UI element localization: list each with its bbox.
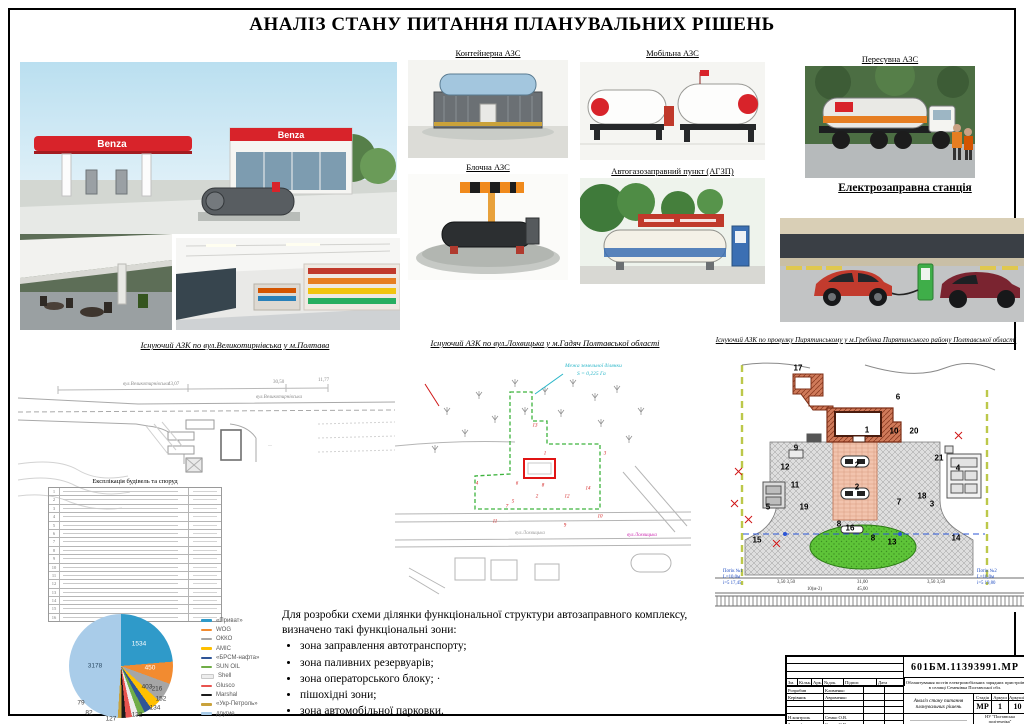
note-bullet: зона заправлення автотранспорту; bbox=[300, 639, 712, 654]
organization: НУ "Полтавська політехніка" ім. Юрія Кон… bbox=[973, 713, 1024, 724]
plan-number-label: 13 bbox=[888, 538, 897, 547]
plan-number-label: 20 bbox=[910, 427, 919, 436]
legend-swatch bbox=[201, 703, 212, 705]
agzp-photo bbox=[580, 178, 765, 284]
title-block-cell bbox=[863, 720, 885, 724]
legend-swatch bbox=[201, 647, 212, 649]
explication-cell bbox=[189, 488, 221, 495]
plan-number-label: 13 bbox=[533, 424, 538, 429]
plan-number-label: 2 bbox=[536, 495, 539, 500]
explication-cell: 12 bbox=[49, 580, 60, 587]
explication-cell bbox=[60, 597, 189, 604]
legend-item: Glusco bbox=[201, 681, 259, 690]
explication-cell bbox=[189, 555, 221, 562]
plan-right-numbers: 17611020912115192221418378168131514 bbox=[715, 350, 1024, 612]
plan-number-label: 2 bbox=[855, 483, 859, 492]
legend-label: «Укр-Петроль» bbox=[216, 701, 258, 707]
plan-number-label: 8 bbox=[871, 534, 875, 543]
explication-cell bbox=[189, 496, 221, 503]
legend-swatch bbox=[201, 619, 212, 621]
pie-value-label: 1534 bbox=[132, 641, 146, 648]
explication-cell: 7 bbox=[49, 538, 60, 545]
explication-row: 10 bbox=[49, 564, 221, 572]
explication-cell bbox=[189, 522, 221, 529]
plan-number-label: 10 bbox=[598, 515, 603, 520]
sheet-frame: АНАЛІЗ СТАНУ ПИТАННЯ ПЛАНУВАЛЬНИХ РІШЕНЬ… bbox=[8, 8, 1016, 716]
ev-charging-photo bbox=[780, 218, 1024, 322]
legend-item: ОККО bbox=[201, 635, 259, 644]
explication-cell bbox=[60, 530, 189, 537]
legend-label: Marshal bbox=[216, 692, 237, 698]
note-bullet: зона операторського блоку; · bbox=[300, 672, 712, 687]
svg-text:30,50: 30,50 bbox=[273, 380, 285, 385]
plan-number-label: 19 bbox=[800, 503, 809, 512]
explication-title: Експлікація будівель та споруд bbox=[48, 478, 222, 485]
title-block-cell: Кільк. bbox=[797, 678, 812, 686]
towable-azs-photo bbox=[805, 66, 975, 178]
legend-label: ОККО bbox=[216, 636, 232, 642]
pie-value-label: 82 bbox=[85, 710, 92, 717]
explication-row: 9 bbox=[49, 555, 221, 563]
explication-cell bbox=[60, 522, 189, 529]
explication-cell bbox=[60, 513, 189, 520]
plan-number-label: 21 bbox=[935, 454, 944, 463]
note-bullet: зона автомобільної парковки. bbox=[300, 704, 712, 719]
doc-number: 601БМ.11393991.МР bbox=[903, 656, 1024, 678]
benza-render-image: Benza Benza bbox=[20, 62, 397, 234]
explication-table: Експлікація будівель та споруд 123456789… bbox=[48, 478, 222, 622]
legend-item: AMIC bbox=[201, 644, 259, 653]
plan-number-label: 14 bbox=[952, 534, 961, 543]
explication-cell bbox=[189, 597, 221, 604]
pie-value-label: 3178 bbox=[88, 663, 102, 670]
explication-cell: 4 bbox=[49, 513, 60, 520]
legend-item: WOG bbox=[201, 625, 259, 634]
azs-exterior-photo bbox=[20, 234, 172, 330]
plan-number-label: 7 bbox=[897, 498, 901, 507]
explication-cell: 13 bbox=[49, 589, 60, 596]
benza-building: Benza bbox=[230, 128, 352, 194]
explication-cell bbox=[189, 589, 221, 596]
towable-azs-caption: Пересувна АЗС bbox=[805, 54, 975, 64]
plan-number-label: 17 bbox=[794, 364, 803, 373]
plan-number-label: 3 bbox=[604, 452, 607, 457]
explication-cell bbox=[60, 564, 189, 571]
explication-cell: 5 bbox=[49, 522, 60, 529]
legend-item: «Укр-Петроль» bbox=[201, 700, 259, 709]
legend-swatch bbox=[201, 694, 212, 696]
block-azs-photo bbox=[408, 174, 568, 280]
plan-number-label: 16 bbox=[846, 524, 855, 533]
plan-left-caption: Існуючий АЗК по вул.Великотирнівська у м… bbox=[70, 340, 400, 350]
container-azs-photo bbox=[408, 60, 568, 158]
title-block: Зм.Кільк.Арк.№док.ПідписДатаРозробивКлим… bbox=[785, 655, 1024, 724]
explication-row: 2 bbox=[49, 496, 221, 504]
plan-number-label: 6 bbox=[896, 393, 900, 402]
legend-label: другие bbox=[216, 711, 235, 717]
drawing-sheet: АНАЛІЗ СТАНУ ПИТАННЯ ПЛАНУВАЛЬНИХ РІШЕНЬ… bbox=[0, 0, 1024, 724]
explication-cell bbox=[60, 572, 189, 579]
explication-cell bbox=[60, 496, 189, 503]
legend-swatch bbox=[201, 657, 212, 659]
title-block-cell: Зав.кафедри bbox=[786, 720, 824, 724]
plan-middle-numbers: 1313468212145711109 bbox=[395, 354, 691, 606]
fuel-truck bbox=[819, 98, 955, 149]
explication-cell bbox=[189, 564, 221, 571]
legend-swatch bbox=[201, 666, 212, 668]
notes-intro-2: визначено такі функціональні зони: bbox=[282, 623, 712, 638]
plan-middle-caption: Існуючий АЗК по вул.Лохвицька у м.Гадяч … bbox=[400, 338, 690, 348]
legend-swatch bbox=[201, 685, 212, 687]
explication-row: 12 bbox=[49, 580, 221, 588]
explication-row: 13 bbox=[49, 589, 221, 597]
plan-number-label: 14 bbox=[586, 487, 591, 492]
explication-row: 11 bbox=[49, 572, 221, 580]
legend-item: «Приват» bbox=[201, 616, 259, 625]
plan-number-label: 11 bbox=[791, 481, 799, 490]
legend-item: Marshal bbox=[201, 690, 259, 699]
explication-row: 7 bbox=[49, 538, 221, 546]
explication-cell bbox=[60, 505, 189, 512]
plan-number-label: 6 bbox=[516, 482, 519, 487]
explication-cell: 6 bbox=[49, 530, 60, 537]
svg-text:вул.Великотирнівська: вул.Великотирнівська bbox=[123, 382, 169, 387]
explication-cell bbox=[189, 580, 221, 587]
ev-station-caption: Електрозаправна станція bbox=[785, 182, 1024, 194]
plan-number-label: 10 bbox=[890, 427, 899, 436]
plan-number-label: 4 bbox=[956, 464, 960, 473]
pie-value-label: 132 bbox=[132, 712, 143, 719]
store-interior-photo bbox=[176, 238, 400, 330]
explication-cell bbox=[60, 547, 189, 554]
legend-item: «БРСМ-нафта» bbox=[201, 653, 259, 662]
pie-value-label: 450 bbox=[145, 665, 156, 672]
legend-swatch bbox=[201, 674, 214, 678]
svg-text:Benza: Benza bbox=[278, 130, 306, 140]
svg-text:43,07: 43,07 bbox=[168, 382, 180, 387]
site-plan-hrebinka: 3,50 3,50 31,00 3,50 3,50 10(м-2) 45,00 … bbox=[715, 350, 1024, 612]
plan-number-label: 9 bbox=[794, 444, 798, 453]
explication-cell bbox=[189, 513, 221, 520]
explication-cell: 11 bbox=[49, 572, 60, 579]
explication-row: 8 bbox=[49, 547, 221, 555]
plan-number-label: 11 bbox=[493, 520, 498, 525]
svg-text:вул.Великотирнівська: вул.Великотирнівська bbox=[256, 395, 302, 400]
explication-row: 1 bbox=[49, 488, 221, 496]
title-block-cell bbox=[884, 720, 904, 724]
explication-cell bbox=[189, 547, 221, 554]
explication-cell bbox=[60, 580, 189, 587]
empty-note-cell bbox=[903, 713, 974, 724]
explication-cell bbox=[189, 505, 221, 512]
legend-label: «Приват» bbox=[216, 618, 243, 624]
plan-number-label: 18 bbox=[918, 492, 927, 501]
site-plan-hadiach: Межа земельної ділянки S = 0,225 Га вул.… bbox=[395, 354, 691, 606]
explication-cell bbox=[189, 572, 221, 579]
explication-cell: 9 bbox=[49, 555, 60, 562]
plan-number-label: 12 bbox=[565, 495, 570, 500]
explication-cell: 1 bbox=[49, 488, 60, 495]
plan-number-label: 3 bbox=[930, 500, 934, 509]
explication-cell bbox=[60, 488, 189, 495]
legend-label: AMIC bbox=[216, 646, 231, 652]
legend-item: другие bbox=[201, 709, 259, 718]
note-bullet: зона паливних резервуарів; bbox=[300, 656, 712, 671]
title-block-cell: Дата bbox=[876, 678, 905, 686]
title-block-cell: №док. bbox=[822, 678, 844, 686]
project-name: Облаштування постів електромобільних зар… bbox=[903, 677, 1024, 694]
mobile-azs-caption: Мобільна АЗС bbox=[580, 48, 765, 58]
page-title: АНАЛІЗ СТАНУ ПИТАННЯ ПЛАНУВАЛЬНИХ РІШЕНЬ bbox=[10, 14, 1014, 36]
plan-right-caption: Існуючий АЗК по провулку Пирятинському у… bbox=[710, 336, 1022, 344]
legend-label: «БРСМ-нафта» bbox=[216, 655, 259, 661]
legend-item: SUN OIL bbox=[201, 662, 259, 671]
container-azs-caption: Контейнерна АЗС bbox=[408, 48, 568, 58]
legend-label: WOG bbox=[216, 627, 231, 633]
stage-value: МР bbox=[973, 700, 992, 714]
explication-cell bbox=[60, 589, 189, 596]
title-block-cell: Підпис bbox=[843, 678, 877, 686]
plan-number-label: 4 bbox=[476, 482, 479, 487]
svg-text:Benza: Benza bbox=[97, 139, 127, 150]
plan-number-label: 15 bbox=[753, 536, 762, 545]
plan-number-label: 5 bbox=[512, 500, 515, 505]
legend-item: Shell bbox=[201, 672, 259, 681]
plan-number-label: 9 bbox=[564, 524, 567, 529]
plan-number-label: 8 bbox=[837, 520, 841, 529]
explication-cell: 14 bbox=[49, 597, 60, 604]
legend-label: Glusco bbox=[216, 683, 235, 689]
svg-text:11,77: 11,77 bbox=[318, 378, 330, 383]
agzp-caption: Автогазозаправний пункт (АГЗП) bbox=[580, 166, 765, 176]
pie-value-label: 216 bbox=[152, 686, 163, 693]
explication-row: 5 bbox=[49, 522, 221, 530]
chart-legend: «Приват»WOGОККОAMIC«БРСМ-нафта»SUN OILSh… bbox=[201, 616, 259, 718]
explication-row: 6 bbox=[49, 530, 221, 538]
explication-cell: 8 bbox=[49, 547, 60, 554]
plan-number-label: 12 bbox=[781, 463, 790, 472]
legend-swatch bbox=[201, 712, 212, 714]
pie-value-label: 127 bbox=[106, 716, 117, 723]
pie-value-label: 152 bbox=[156, 696, 167, 703]
sheet-value: 1 bbox=[991, 700, 1009, 714]
explication-cell: 3 bbox=[49, 505, 60, 512]
plan-number-label: 5 bbox=[766, 503, 770, 512]
plan-number-label: 8 bbox=[542, 484, 545, 489]
plan-number-label: 2 bbox=[855, 461, 859, 470]
explication-cell: 10 bbox=[49, 564, 60, 571]
explication-grid: 12345678910111213141516 bbox=[48, 487, 222, 622]
mobile-azs-photo bbox=[580, 62, 765, 160]
sheets-value: 10 bbox=[1008, 700, 1024, 714]
explication-row: 4 bbox=[49, 513, 221, 521]
pie-chart: 153445040321615213413212782793178 «Прива… bbox=[43, 610, 287, 724]
note-bullet: пішохідні зони; bbox=[300, 688, 712, 703]
pie-value-label: 79 bbox=[77, 700, 84, 707]
notes-bullets: зона заправлення автотранспорту;зона пал… bbox=[286, 639, 712, 719]
plan-number-label: 1 bbox=[865, 426, 869, 435]
title-block-cell: Семко О.В. bbox=[823, 720, 864, 724]
legend-label: Shell bbox=[218, 673, 231, 679]
plan-number-label: 1 bbox=[544, 452, 547, 457]
notes-intro-1: Для розробки схеми ділянки функціонально… bbox=[282, 608, 712, 623]
explication-cell bbox=[189, 530, 221, 537]
explication-row: 14 bbox=[49, 597, 221, 605]
functional-zones-notes: Для розробки схеми ділянки функціонально… bbox=[282, 608, 712, 720]
explication-cell bbox=[189, 538, 221, 545]
legend-swatch bbox=[201, 638, 212, 640]
sheet-name: Аналіз стану питання планувальних рішень bbox=[903, 693, 974, 714]
explication-row: 3 bbox=[49, 505, 221, 513]
pie-value-label: 134 bbox=[150, 705, 161, 712]
explication-cell bbox=[60, 538, 189, 545]
explication-cell: 2 bbox=[49, 496, 60, 503]
plan-number-label: 7 bbox=[506, 505, 509, 510]
legend-swatch bbox=[201, 629, 212, 631]
explication-cell bbox=[60, 555, 189, 562]
block-azs-caption: Блочна АЗС bbox=[408, 162, 568, 172]
legend-label: SUN OIL bbox=[216, 664, 240, 670]
